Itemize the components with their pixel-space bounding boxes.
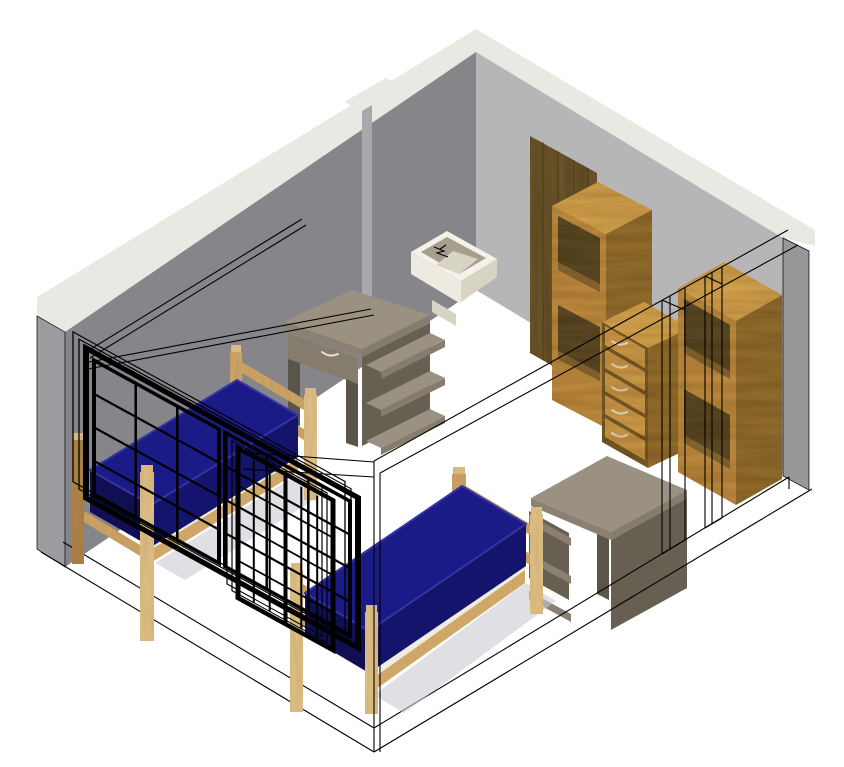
room-render-canvas [0,0,844,767]
desk-front [529,456,687,630]
bookcase-right [678,262,782,505]
